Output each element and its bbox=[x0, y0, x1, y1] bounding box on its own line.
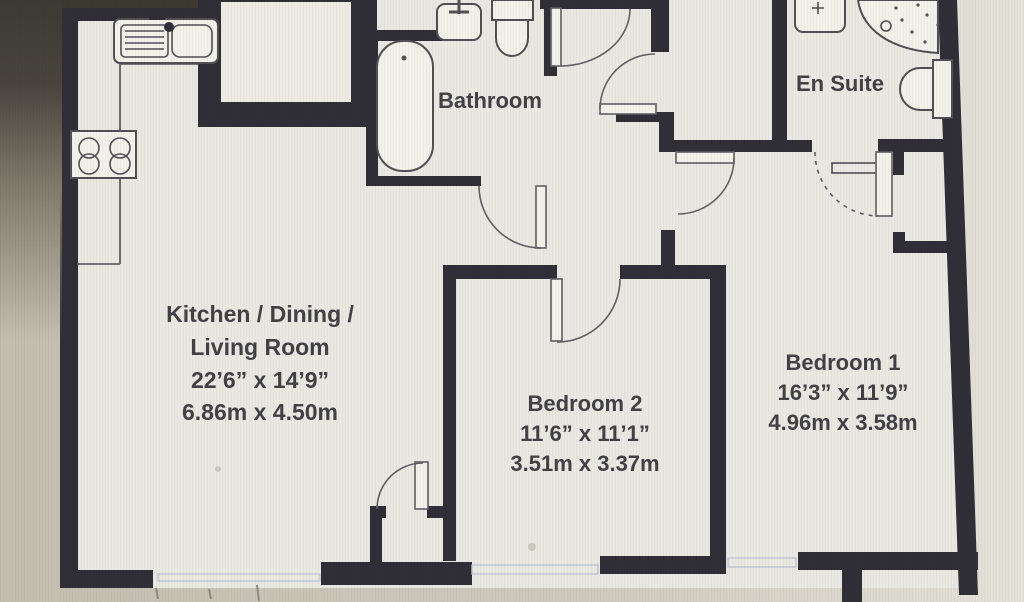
hob bbox=[71, 131, 136, 178]
toilet-cistern bbox=[933, 60, 952, 118]
wall-bedroom2-right bbox=[710, 265, 726, 574]
wall-left-outer bbox=[60, 8, 78, 588]
door-leaf bbox=[415, 462, 428, 509]
basin-body bbox=[795, 0, 845, 32]
kitchen-dims-imperial: 22’6” x 14’9” bbox=[191, 367, 329, 393]
wall-vestibule-side bbox=[370, 518, 382, 564]
bathtub bbox=[377, 41, 433, 171]
void-above-kitchen bbox=[221, 2, 351, 102]
wall-bedroom1-top bbox=[661, 140, 812, 152]
door-leaf bbox=[551, 8, 561, 66]
toilet-bowl bbox=[496, 20, 528, 56]
wall-bottom-center bbox=[321, 562, 472, 585]
wall-bedroom2-top-left bbox=[443, 265, 557, 279]
floorplan-drawing: Kitchen / Dining / Living Room 22’6” x 1… bbox=[0, 0, 1024, 602]
door-leaf bbox=[676, 152, 734, 163]
bathroom-basin bbox=[437, 0, 481, 40]
photo-smudge bbox=[215, 466, 221, 472]
wall-bedroom2-top-right bbox=[620, 265, 712, 279]
balcony-tick bbox=[209, 589, 211, 599]
wall-bottom-left bbox=[60, 570, 153, 588]
kitchen-label-line2: Living Room bbox=[190, 334, 329, 360]
door-leaf bbox=[551, 279, 562, 341]
bathtub-body bbox=[377, 41, 433, 171]
bedroom2-label: Bedroom 2 bbox=[528, 391, 643, 416]
balcony-tick bbox=[156, 588, 158, 599]
photo-background-top bbox=[60, 0, 210, 9]
bedroom2-dims-metric: 3.51m x 3.37m bbox=[510, 451, 659, 476]
bathtub-drain bbox=[402, 56, 407, 61]
toilet-bowl bbox=[900, 68, 933, 110]
wall-lobby bbox=[651, 0, 669, 52]
wall-vestibule-stub-right bbox=[427, 506, 446, 518]
kitchen-label-line1: Kitchen / Dining / bbox=[166, 301, 354, 327]
wall-vestibule-stub-left bbox=[370, 506, 386, 518]
door-leaf bbox=[876, 152, 892, 216]
wall-ensuite-left bbox=[772, 0, 787, 150]
wall-bathroom-bottom bbox=[366, 176, 481, 186]
bedroom1-label: Bedroom 1 bbox=[786, 350, 901, 375]
floorplan-photo: Kitchen / Dining / Living Room 22’6” x 1… bbox=[0, 0, 1024, 602]
sink-tap-spout bbox=[164, 22, 174, 32]
bathroom-label: Bathroom bbox=[438, 88, 542, 113]
wall-bathroom-top bbox=[366, 30, 443, 41]
wall-jog-stub bbox=[893, 152, 904, 175]
photo-smudge bbox=[528, 543, 536, 551]
bedroom1-dims-metric: 4.96m x 3.58m bbox=[768, 410, 917, 435]
wall-bedroom1-bottom bbox=[798, 552, 978, 570]
ensuite-basin bbox=[795, 0, 845, 32]
wall-bedroom2-bottom bbox=[600, 556, 726, 574]
door-leaf bbox=[600, 104, 656, 114]
kitchen-dims-metric: 6.86m x 4.50m bbox=[182, 399, 338, 425]
door-leaf bbox=[536, 186, 546, 248]
wall-bedroom1-door-stub bbox=[661, 230, 675, 266]
ensuite-label: En Suite bbox=[796, 71, 884, 96]
kitchen-sink bbox=[114, 11, 218, 63]
wall-balcony-stub bbox=[842, 570, 862, 602]
bedroom2-dims-imperial: 11’6” x 11’1” bbox=[520, 421, 650, 446]
toilet-cistern bbox=[492, 0, 533, 20]
bedroom1-dims-imperial: 16’3” x 11’9” bbox=[778, 380, 909, 405]
wall-recess-left bbox=[893, 232, 905, 253]
sink-tap bbox=[149, 11, 165, 20]
